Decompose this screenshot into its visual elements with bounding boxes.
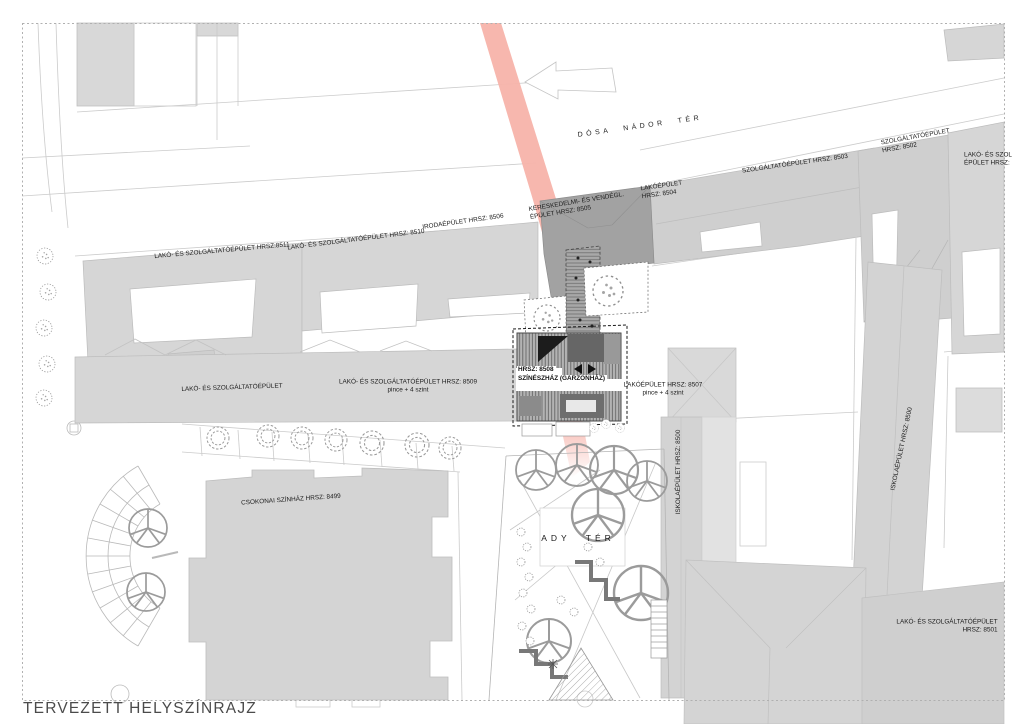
building-label-8507: LAKÓÉPÜLET HRSZ: 8507pince + 4 szint xyxy=(624,381,703,396)
street-label-ady-ter: ADY TÉR xyxy=(541,535,615,543)
street-name: ADY TÉR xyxy=(541,533,615,543)
site-plan-canvas xyxy=(0,0,1024,724)
drawing-title: TERVEZETT HELYSZÍNRAJZ xyxy=(23,700,257,718)
park-steps xyxy=(651,600,667,658)
site-plan: DÓSA NÁDOR TÉR ADY TÉR LAKÓ- ÉS SZOLGÁLT… xyxy=(0,0,1024,724)
building-label-8509: LAKÓ- ÉS SZOLGÁLTATÓÉPÜLET HRSZ: 8509pin… xyxy=(339,378,477,393)
building-label-8501: LAKÓ- ÉS SZOLGÁLTATÓÉPÜLETHRSZ: 8501 xyxy=(896,618,997,633)
bottom-right-blocks xyxy=(684,560,1004,724)
building-label-8500-left: ISKOLAÉPÜLET HRSZ: 8500 xyxy=(675,430,683,515)
building-label-right-edge: LAKÓ- ÉS SZOLÉPÜLET HRSZ: xyxy=(964,151,1012,166)
building-label-8508: HRSZ: 8508SZÍNÉSZHÁZ (GARZONHÁZ) xyxy=(517,366,607,384)
ady-ter-park xyxy=(489,444,669,700)
csokonai-theatre xyxy=(189,468,452,700)
left-edge-trees xyxy=(36,248,56,406)
amphitheatre-fan xyxy=(86,466,178,646)
